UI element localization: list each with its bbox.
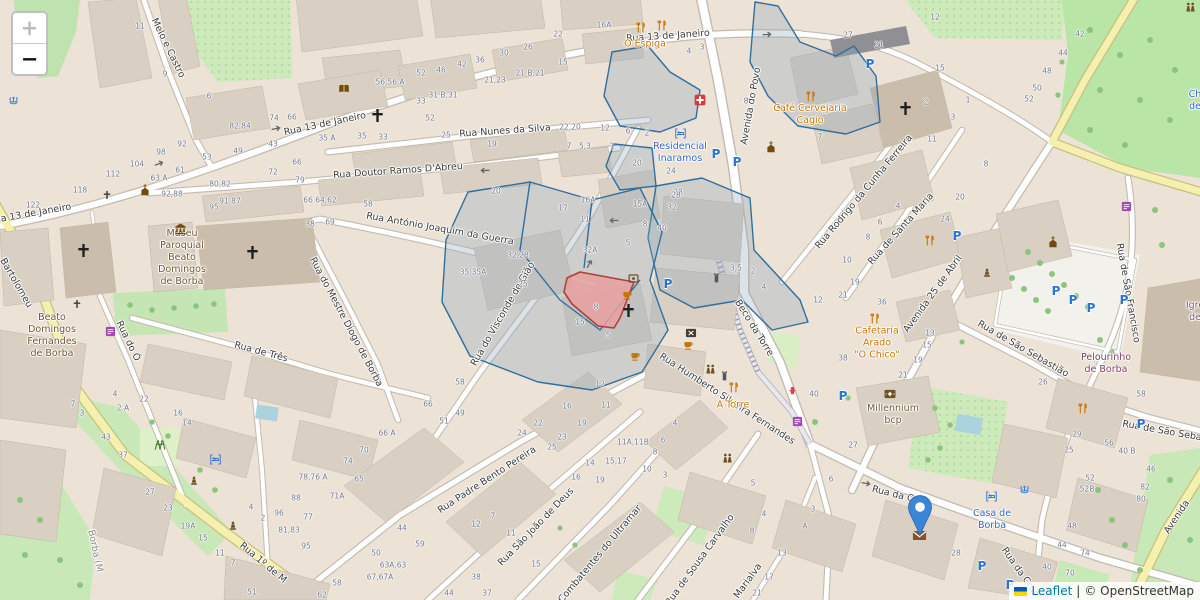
poi-name-line: Cafetaria [854,325,900,337]
house-number-label: 49 [233,147,243,156]
house-number-label: 21,23 [484,76,505,85]
poi-name-line: Domingos [158,264,206,276]
house-number-label: 11 [927,135,937,144]
house-number-label: 10 [842,256,852,265]
house-number-label: 38 [471,573,481,582]
house-number-label: 22 [553,30,563,39]
poi-name-line: A Torre [717,399,750,411]
house-number-label: 118 [73,186,87,195]
poi-name-label: Pelourinhode Borba [1081,352,1131,376]
parking-icon: P [1137,417,1146,431]
cross-lg-icon [77,244,90,257]
house-number-label: 11 [580,215,590,224]
poi-name-line: Fernandes [27,336,76,348]
house-number-label: 7 [231,559,236,568]
house-number-label: 19 [913,356,923,365]
chapel-icon [139,184,151,196]
house-number-label: 62 [317,591,327,600]
house-number-label: 13 [777,549,787,558]
house-number-label: 36 [475,56,485,65]
street-name-label: Melo e Castro [149,16,187,79]
house-number-label: 1 [966,96,971,105]
zoom-in-button[interactable]: + [13,13,46,44]
house-number-label: 21 B,21 [515,69,544,78]
house-number-label: 67,67A [367,573,394,582]
house-number-label: 35 A [318,134,335,143]
house-number-label: 92,88 [161,190,182,199]
parking-icon: P [1087,301,1096,315]
house-number-label: 25 [1064,446,1074,455]
parking-icon: P [712,147,721,161]
house-number-label: 71A [330,492,345,501]
house-number-label: 96 [274,509,284,518]
house-number-label: 2 [924,98,929,107]
house-number-label: 7 [491,512,496,521]
house-number-label: 7 [818,133,823,142]
poi-name-line: Igre [1186,300,1200,312]
street-name-label: Rua de São Sebastião [976,318,1071,379]
house-number-label: 74 [1080,549,1090,558]
house-number-label: 52 [1085,474,1095,483]
parking-icon: P [866,57,875,71]
house-number-label: 42 [1075,30,1085,39]
house-number-label: 2 [645,129,650,138]
house-number-label: 16 [571,473,581,482]
house-number-label: 56 [1104,439,1114,448]
house-number-label: 66 64,62 [303,196,336,205]
house-number-label: 6 [626,127,631,136]
pharmacy-icon [694,94,706,106]
leaflet-link[interactable]: Leaflet [1031,584,1072,598]
restaurant-icon [728,382,739,393]
house-number-label: 20 [491,187,501,196]
house-number-label: 37 [482,589,492,598]
hydrant-icon [788,386,797,395]
house-number-label: 38 [305,220,315,229]
house-number-label: 29 [1072,430,1082,439]
house-number-label: 80,82 [209,180,230,189]
poi-name-line: Ch [1189,89,1200,101]
house-number-label: 7 [567,142,572,151]
house-number-label: 40 B [1118,447,1135,456]
zoom-out-button[interactable]: − [13,44,46,74]
house-number-label: 32A [583,246,598,255]
house-number-label: 21 [752,589,762,598]
house-number-label: 11 [215,549,225,558]
parking-icon: P [839,389,848,403]
house-number-label: 61 [175,166,185,175]
house-number-label: 15 [575,318,585,327]
clothes-icon [705,364,716,375]
house-number-label: 17 [764,573,774,582]
house-number-label: 51 [439,417,449,426]
house-number-label: 72 [268,168,278,177]
poi-name-line: Inaramos [653,153,707,165]
house-number-label: 48 [1042,67,1052,76]
cross-lg-icon [622,304,635,317]
house-number-label: 46 [436,66,446,75]
house-number-label: 15 [531,560,541,569]
house-number-label: 43 [268,140,278,149]
shop-icon [105,326,116,337]
house-number-label: 11 [601,401,611,410]
clothes-icon [722,453,733,464]
poi-name-line: Paroquial [158,240,206,252]
house-number-label: 8 [594,303,599,312]
house-number-label: 9 [163,70,168,79]
house-number-label: 5 [606,331,611,340]
house-number-label: 8 [643,220,648,229]
house-number-label: 6 [207,92,212,101]
house-number-label: 28 [671,191,681,200]
poi-name-label: MuseuParoquialBeatoDomingosde Borba [158,228,206,288]
house-number-label: 19 [577,419,587,428]
cross-lg-icon [246,246,259,259]
parking-icon: P [1052,284,1061,298]
house-number-label: 40 [809,390,819,399]
house-number-label: 46 [1146,465,1156,474]
hotel-icon [675,128,686,139]
house-number-label: 22 [533,419,543,428]
poi-name-line: Cagio [773,115,846,127]
restaurant-icon [656,20,667,31]
house-number-label: 33 [416,97,426,106]
house-number-label: 5 [751,479,756,488]
cross-lg-icon [899,102,912,115]
poi-name-line: Borba [973,520,1011,532]
house-number-label: 13 [925,329,935,338]
house-number-label: 122 [26,201,40,210]
house-number-label: 35 [357,132,367,141]
house-number-label: 25 [518,280,528,289]
house-number-label: 52 [416,69,426,78]
house-number-label: 6 [878,218,883,227]
cross-sm-icon [73,300,81,308]
arrow-icon [478,164,489,175]
street-name-label: Rua de Santa Maria [866,191,936,267]
house-number-label: 1 [610,142,615,151]
house-number-label: 52 [425,114,435,123]
street-name-label: Rua António Joaquim da Guerra [365,211,514,248]
house-number-label: 15,17 [605,457,626,466]
house-number-label: 5 [626,239,631,248]
house-number-label: 66 [423,400,433,409]
house-number-label: 11A,11B [617,438,649,447]
house-number-label: 5,3 [579,142,591,151]
arrow-icon [860,477,873,490]
playground-icon [154,439,166,451]
house-number-label: 12 [595,380,605,389]
zoom-control: + − [11,11,48,76]
house-number-label: 98 [156,148,166,157]
house-number-label: 52 [1024,95,1034,104]
clothes-icon [1185,2,1196,13]
parking-icon: P [1120,293,1129,307]
house-number-label: 37 [118,451,128,460]
house-number-label: 49 [455,409,465,418]
map-canvas[interactable]: Melo e CastroRua 13 de JaneiroRua 13 de … [0,0,1200,600]
street-name-label: Borba (M [85,529,105,573]
house-number-label: 32 [667,203,677,212]
house-number-label: 23 [557,433,567,442]
house-number-label: 31 B,31 [428,91,457,100]
street-name-label: Rua 1º de M [237,540,288,585]
house-number-label: 66 [292,158,302,167]
arrow-icon [152,156,166,170]
chapel-icon [1047,236,1059,248]
poi-name-label: O Espiga [624,38,666,50]
poi-name-line: Millennium [867,403,919,415]
poi-name-label: Café CervejariaCagio [773,103,846,127]
house-number-label: 7 [71,400,76,409]
house-number-label: 12 [471,520,481,529]
house-number-label: 26 [523,43,533,52]
bank-icon [884,388,896,400]
poi-name-line: Casa de [973,508,1011,520]
poi-name-label: Casa deBorba [973,508,1011,532]
house-number-label: 25 [441,131,451,140]
house-number-label: 27 [145,488,155,497]
house-number-label: 14 [182,419,192,428]
cinema-icon [685,327,697,339]
arrow-icon [582,256,597,271]
house-number-label: 16A [597,21,612,30]
house-number-label: 4 [249,503,254,512]
house-number-label: 19 [850,278,860,287]
street-name-label: Avenida [1162,498,1192,536]
house-number-label: 19A [181,522,196,531]
attribution-bar: Leaflet | © OpenStreetMap [1009,582,1200,600]
cafe-icon [630,350,641,361]
house-number-label: 4 [687,47,692,56]
street-name-label: Rua do Ó [114,319,143,363]
house-number-label: 80 [1136,495,1146,504]
poi-name-line: de Borba [1081,364,1131,376]
poi-name-line: Beato [27,312,76,324]
house-number-label: 50 [1032,84,1042,93]
house-number-label: 36 [877,298,887,307]
house-number-label: 10 [642,465,652,474]
house-number-label: 2 A [117,404,129,413]
house-number-label: 16 [173,409,183,418]
house-number-label: 4 [762,283,767,292]
street-name-label: Rua Doutor Ramos D'Abreu [333,161,463,181]
house-number-label: 112 [106,170,120,179]
house-number-label: 23 [163,504,173,513]
house-number-label: 6 [661,436,666,445]
street-name-label: Rua Padre Bento Pereira [436,444,538,516]
street-name-label: Rua São João de Deus [496,486,576,568]
house-number-label: 15 [922,341,932,350]
poi-name-label: ResidencialInaramos [653,141,707,165]
artwork-icon [628,273,639,284]
cross-lg-icon [371,109,384,122]
house-number-label: 8 [984,160,989,169]
house-number-label: 35,35A [460,268,487,277]
house-number-label: 44 [1057,541,1067,550]
house-number-label: 82,84 [229,122,250,131]
house-number-label: 2 [751,267,756,276]
parking-icon: P [1069,293,1078,307]
chapel-icon [765,141,777,153]
house-number-label: 38 [838,354,848,363]
poi-name-label: CafetariaArado"O Chico" [854,325,900,361]
house-number-label: 20 [955,193,965,202]
cross-sm-icon [103,191,111,199]
house-number-label: 30 [499,49,509,58]
street-name-label: Beco da Torre [732,298,776,359]
house-number-label: 2 [261,514,266,523]
poi-name-line: Beato [158,252,206,264]
arrow-icon [761,28,773,40]
house-number-label: 19 [595,476,605,485]
house-number-label: 8 [653,448,658,457]
cafe-icon [683,339,694,350]
poi-name-line: "O Chico" [854,349,900,361]
house-number-label: 63A,63 [380,561,407,570]
house-number-label: 3 [700,43,705,52]
house-number-label: 27 [848,441,858,450]
house-number-label: 15A [633,200,648,209]
street-name-label: Avenida 25 de Abril [901,253,964,334]
house-number-label: 24 [666,167,676,176]
house-number-label: 32,28 [507,251,528,260]
house-number-label: 104 [130,160,144,169]
house-number-label: 14 [585,459,595,468]
house-number-label: 3 [811,505,816,514]
map-labels-layer: Melo e CastroRua 13 de JaneiroRua 13 de … [0,0,1200,600]
restaurant-icon [635,22,646,33]
house-number-label: 4 [113,390,118,399]
house-number-label: 48 [1067,522,1077,531]
restaurant-icon [1077,403,1088,414]
house-number-label: 44 [1058,49,1068,58]
house-number-label: 78,76 A [299,473,328,482]
house-number-label: 63 A [150,174,167,183]
arrow-icon [608,215,619,226]
house-number-label: 3 [951,113,956,122]
poi-name-line: O Espiga [624,38,666,50]
house-number-label: 77 [303,513,313,522]
house-number-label: 8 [750,527,755,536]
hotel-icon [210,454,221,465]
house-number-label: 15 [558,58,568,67]
house-number-label: 95 [209,203,219,212]
fountain-icon [1019,484,1030,495]
house-number-label: 65 [354,475,364,484]
street-name-label: Rua Nunes da Silva [459,122,551,139]
restaurant-icon [805,91,816,102]
house-number-label: 95 [301,542,311,551]
house-number-label: 44 [444,589,454,598]
house-number-label: 21 [874,41,884,50]
house-number-label: 15 [935,64,945,73]
house-number-label: 88 [291,494,301,503]
arrow-icon [269,121,282,134]
house-number-label: 33 [378,133,388,142]
poi-name-line: de Borba [158,276,206,288]
house-number-label: 58 [1136,390,1146,399]
house-number-label: 74 [269,114,279,123]
house-number-label: 12 [930,13,940,22]
house-number-label: 69 [325,218,335,227]
poi-name-label: Chde [1189,89,1200,113]
statue-icon [982,268,992,278]
poi-name-line: de [1186,312,1200,324]
map-marker-pin[interactable] [906,494,934,538]
house-number-label: A [802,522,807,531]
restaurant-icon [869,313,880,324]
house-number-label: 79 [295,176,305,185]
book-icon [338,83,350,95]
openstreetmap-credit: © OpenStreetMap [1084,584,1194,598]
poi-name-line: Arado [854,337,900,349]
house-number-label: 27 [843,31,853,40]
poi-name-line: bcp [867,415,919,427]
house-number-label: 58 [455,378,465,387]
house-number-label: 22,20 [559,123,580,132]
house-number-label: 50 [371,549,381,558]
street-name-label: Rua de Sousa Carvalho [663,512,736,600]
house-number-label: 4 [673,419,678,428]
house-number-label: 12 [813,296,823,305]
house-number-label: 28 [951,549,961,558]
poi-name-label: Igrede [1186,300,1200,324]
ukraine-flag-icon [1014,587,1027,596]
parking-icon: P [664,277,673,291]
poi-name-line: Domingos [27,324,76,336]
tower-icon [711,272,722,283]
poi-name-line: de Borba [27,348,76,360]
poi-name-line: Café Cervejaria [773,103,846,115]
house-number-label: 70 [1065,569,1075,578]
street-name-label: Rua de São Seba [1121,419,1200,444]
attribution-separator: | [1076,584,1080,598]
fountain-icon [8,95,19,106]
hotel-icon [986,491,997,502]
house-number-label: 24 [940,215,950,224]
parking-icon: P [953,229,962,243]
house-number-label: 40 [1042,563,1052,572]
house-number-label: 70 [359,446,369,455]
restaurant-icon [924,235,935,246]
parking-icon: P [978,559,987,573]
house-number-label: 17 [558,204,568,213]
street-name-label: Bartolomeu [0,256,35,309]
street-name-label: Rua do Mestre Diogo de Borba [307,255,385,388]
museum-icon [174,222,187,235]
house-number-label: 11 [506,529,516,538]
parking-icon: P [733,155,742,169]
statue-icon [189,476,199,486]
house-number-label: 91,87 [219,197,240,206]
house-number-label: 3 [80,409,85,418]
house-number-label: 25 [547,443,557,452]
house-number-label: 19 [487,140,497,149]
house-number-label: 22 [139,395,149,404]
house-number-label: 66 [287,113,297,122]
house-number-label: 4 [762,510,767,519]
house-number-label: 81,83 [278,526,299,535]
statue-icon [228,521,238,531]
poi-name-label: Millenniumbcp [867,403,919,427]
shop-icon [1121,201,1132,212]
street-name-label: Avenida do Povo [739,66,763,145]
house-number-label: 8 [866,233,871,242]
house-number-label: 59 [415,540,425,549]
house-number-label: 11 [135,22,145,31]
house-number-label: 51 [247,588,257,597]
